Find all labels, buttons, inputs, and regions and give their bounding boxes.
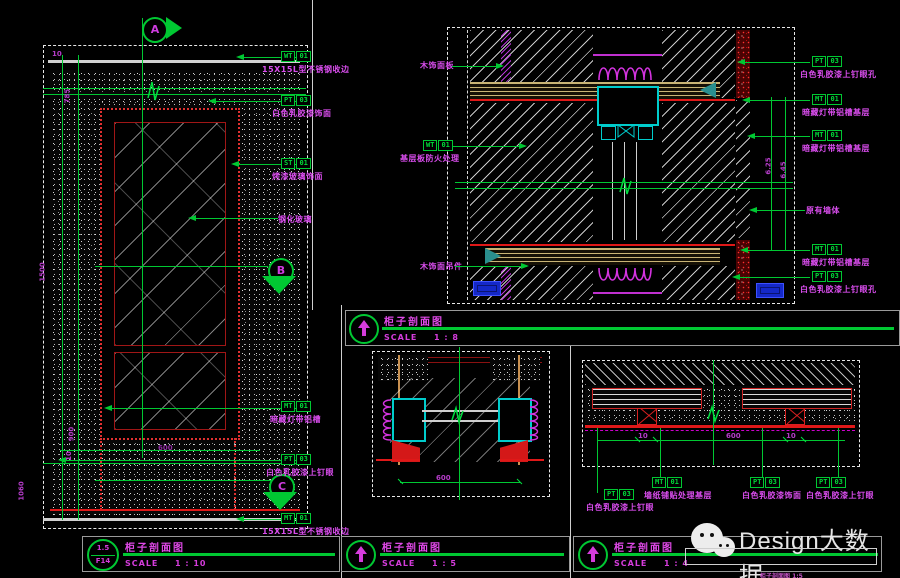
material-tag-1: WT01: [281, 51, 311, 62]
drawing-title: 柜子剖面图: [384, 313, 444, 328]
title-underline: [380, 553, 564, 556]
tag-num: 01: [296, 513, 310, 524]
ceiling-line: [48, 60, 300, 63]
corridor-line-1: [455, 182, 793, 183]
shelf-wedge-bottom-icon: [485, 248, 501, 264]
plan-arrow-r4: [740, 247, 748, 253]
br-label-1: 白色乳胶漆上钉眼: [586, 502, 654, 513]
tag-num: 01: [827, 130, 841, 141]
scale-value: 1 : 5: [432, 559, 457, 568]
material-label-2: 白色乳胶漆饰面: [272, 108, 332, 119]
tag-num: 03: [619, 489, 633, 500]
material-tag-6: MT01: [281, 513, 311, 524]
ref-divider: [91, 555, 115, 556]
leader-to-marker-b: [95, 266, 268, 267]
tag-code: PT: [812, 56, 826, 67]
index-box-glyph: [760, 287, 780, 294]
tag-num: 03: [827, 56, 841, 67]
plan-tag-2: MT01: [812, 94, 842, 105]
titlebar-middle-icon: [346, 540, 376, 570]
tag-num: 01: [438, 140, 452, 151]
up-arrow-stem: [362, 327, 366, 336]
br-dim-600: 600: [726, 432, 741, 440]
cad-drawing-canvas: A B C WT01 15X15L型不锈钢收边 PT03 白色乳胶漆饰面 ST0…: [0, 0, 900, 578]
plan-tag-3: MT01: [812, 130, 842, 141]
wechat-eye: [719, 544, 722, 547]
footnote-text: 柜子剖面图 1:5: [760, 571, 803, 578]
plan-label-2: 暗藏灯带铝槽基层: [802, 107, 870, 118]
wechat-eye: [710, 533, 714, 537]
up-arrow-stem: [359, 553, 363, 562]
tag-code: PT: [816, 477, 830, 488]
dim-10-top: 10: [52, 50, 62, 58]
br-label-3: 白色乳胶漆饰面: [742, 490, 802, 501]
material-label-3: 烤漆玻璃饰面: [272, 171, 323, 182]
tag-code: WT: [423, 140, 437, 151]
break-symbol-icon: [618, 176, 632, 196]
br-label-2: 墙纸铺贴处理基层: [644, 490, 712, 501]
scale-value: 1 : 8: [434, 333, 459, 342]
dim-1060: 1060: [18, 481, 26, 500]
left-red-jamb-r: [234, 438, 239, 510]
title-underline: [123, 553, 335, 556]
tag-num: 01: [296, 158, 310, 169]
coil-cap-top: [593, 54, 662, 56]
br-panel-left: [592, 388, 702, 409]
viewport-divider-vertical-bottom: [570, 345, 571, 578]
wall-hatch-bottom-right: [662, 266, 735, 300]
mid-red-line-left: [376, 459, 420, 461]
section-marker-a: A: [142, 17, 168, 43]
br-tag-4: PT03: [816, 477, 846, 488]
leader-arrow-5: [104, 405, 112, 411]
tag-code: PT: [812, 271, 826, 282]
titlebar-plan-icon: [349, 314, 379, 344]
plan-wall-note: 原有墙体: [806, 205, 840, 216]
leader-6: [65, 460, 303, 461]
plan-note-1: 木饰面板: [420, 60, 454, 71]
leader-5: [110, 408, 303, 409]
level-line-2: [43, 94, 306, 95]
br-dim-10-right: 10: [786, 432, 796, 440]
tag-num: 01: [827, 94, 841, 105]
tag-num: 03: [296, 95, 310, 106]
tag-num: 01: [667, 477, 681, 488]
dim-10: 10: [65, 451, 73, 461]
leader-arrow-glass: [188, 215, 196, 221]
plan-label-4: 暗藏灯带铝槽基层: [802, 257, 870, 268]
spring-coil-bottom-icon: [597, 266, 653, 290]
br-red-face-line: [585, 425, 855, 428]
marker-b-triangle-icon: [262, 276, 296, 294]
plan-label-3: 暗藏灯带铝槽基层: [802, 143, 870, 154]
scale-value: 1 : 10: [175, 559, 206, 568]
leader-glass: [195, 218, 278, 219]
spring-coil-top-icon: [597, 58, 653, 82]
tag-code: MT: [812, 94, 826, 105]
marker-c-triangle-icon: [263, 492, 297, 510]
plan-wall-edge-dashed: [467, 30, 469, 300]
tag-num: 03: [827, 271, 841, 282]
dim-785: 785: [63, 89, 71, 104]
tag-code: MT: [812, 130, 826, 141]
tag-code: WT: [281, 51, 295, 62]
tag-num: 03: [296, 454, 310, 465]
material-tag-4: MT01: [281, 401, 311, 412]
plan-leader-1: [452, 66, 502, 67]
plan-arrow-r1: [737, 59, 745, 65]
mid-frame-right: [498, 398, 532, 442]
tag-code: PT: [281, 454, 295, 465]
bowtie-icon: [617, 124, 635, 138]
plan-leader-r2: [748, 100, 810, 101]
watermark: Design大数据: [683, 515, 893, 570]
plan-arrow-r3: [747, 133, 755, 139]
scale-prefix: SCALE: [125, 559, 158, 568]
br-leader-4: [838, 428, 839, 478]
mid-coil-right-icon: [528, 398, 542, 440]
mid-dim-line: [400, 482, 520, 483]
titlebar-middle: 柜子剖面图 SCALE 1 : 5: [341, 536, 570, 572]
shelf-band-top: [470, 82, 720, 99]
scale-prefix: SCALE: [384, 333, 417, 342]
glass-panel-lower: [114, 352, 226, 430]
br-leader-3: [762, 428, 763, 478]
door-hinge-left: [601, 126, 616, 140]
up-arrow-stem: [591, 553, 595, 562]
mid-frame-left: [392, 398, 426, 442]
break-symbol-icon: [706, 405, 720, 423]
scale-prefix: SCALE: [382, 559, 415, 568]
drawing-title: 柜子剖面图: [125, 539, 185, 554]
break-symbol-icon: [450, 406, 464, 424]
finish-strip-bottom: [501, 266, 511, 300]
plan-arrow-3: [521, 263, 529, 269]
index-box-right: [756, 283, 784, 298]
plan-label-5: 白色乳胶漆上钉眼孔: [800, 284, 877, 295]
marker-a-triangle-icon: [166, 17, 182, 39]
br-blocking-left: [637, 408, 657, 425]
leader-arrow-1: [236, 54, 244, 60]
material-label-5: 白色乳胶漆上钉眼: [266, 467, 334, 478]
tag-num: 03: [831, 477, 845, 488]
plan-leader-r5: [738, 277, 810, 278]
glass-panel-upper: [114, 122, 226, 346]
tag-code: MT: [281, 513, 295, 524]
tag-code: MT: [652, 477, 666, 488]
material-tag-5: PT03: [281, 454, 311, 465]
tag-num: 03: [765, 477, 779, 488]
titlebar-left-ref-bubble: 1.5 F14: [87, 539, 119, 571]
plan-tag-5: PT03: [812, 271, 842, 282]
viewport-divider-vertical-top: [312, 0, 313, 310]
door-leaf-line-1: [612, 142, 613, 240]
br-leader-2: [660, 428, 661, 478]
right-hatch-strip: [736, 100, 750, 238]
titlebar-plan: 柜子剖面图 SCALE 1 : 8: [345, 310, 900, 346]
level-line-3: [43, 463, 306, 464]
wechat-eye: [700, 533, 704, 537]
ref-number: 1.5: [89, 544, 117, 552]
scale-prefix: SCALE: [614, 559, 647, 568]
plan-dim-625: 6.25: [765, 157, 773, 174]
plan-arrow-r5: [732, 274, 740, 280]
plan-leader-2: [453, 146, 525, 147]
br-tag-2: MT01: [652, 477, 682, 488]
glass-note: 钢化玻璃: [278, 214, 312, 225]
dim-600-left: 600: [158, 444, 173, 452]
leader-arrow-2: [208, 98, 216, 104]
red-line-bottom: [470, 244, 735, 246]
material-tag-3: ST01: [281, 158, 311, 169]
titlebar-right-icon: [578, 540, 608, 570]
wall-hatch-mid-left: [470, 103, 593, 242]
tag-code: ST: [281, 158, 295, 169]
ref-sheet: F14: [89, 557, 117, 565]
plan-arrow-wall: [749, 207, 757, 213]
index-box-left: [473, 281, 501, 296]
dim-1500: 1500: [39, 262, 47, 281]
tag-code: PT: [281, 95, 295, 106]
br-magenta-dashed: [585, 430, 855, 432]
left-red-jamb-l: [100, 438, 105, 510]
wechat-eye: [726, 544, 729, 547]
plan-tag-1: PT03: [812, 56, 842, 67]
plan-leader-r3: [753, 136, 810, 137]
door-head-box: [597, 86, 659, 126]
plan-arrow-2: [519, 143, 527, 149]
tag-num: 01: [296, 51, 310, 62]
br-tag-1: PT03: [604, 489, 634, 500]
plan-arrow-r2: [742, 97, 750, 103]
titlebar-left: 1.5 F14 柜子剖面图 SCALE 1 : 10: [82, 536, 340, 572]
drawing-title: 柜子剖面图: [614, 539, 674, 554]
tag-code: PT: [604, 489, 618, 500]
plan-left-tag-label: 基层板防火处理: [400, 153, 460, 164]
drawing-title: 柜子剖面图: [382, 539, 442, 554]
plan-leader-r4: [746, 250, 810, 251]
tag-num: 01: [296, 401, 310, 412]
material-label-4: 暗藏灯带铝槽: [270, 414, 321, 425]
plan-leader-wall: [755, 210, 805, 211]
marker-a-letter: A: [151, 23, 160, 36]
level-line-1: [43, 88, 306, 89]
plan-tag-4: MT01: [812, 244, 842, 255]
tag-code: MT: [812, 244, 826, 255]
plan-dim-645: 6.45: [780, 161, 788, 178]
br-tag-3: PT03: [750, 477, 780, 488]
plan-left-tag: WT01: [423, 140, 453, 151]
mid-dim-600: 600: [436, 474, 451, 482]
tag-num: 01: [827, 244, 841, 255]
material-tag-2: PT03: [281, 95, 311, 106]
leader-to-marker-c: [95, 480, 285, 481]
mid-centerline: [459, 347, 460, 500]
break-symbol-icon: [146, 80, 160, 102]
br-leader-1: [597, 428, 598, 493]
dim-900: 900: [67, 427, 75, 442]
br-dim-10-left: 10: [638, 432, 648, 440]
br-wall-hatch: [585, 363, 855, 385]
title-underline: [382, 327, 894, 330]
tag-code: MT: [281, 401, 295, 412]
index-box-glyph: [477, 285, 497, 292]
tag-code: PT: [750, 477, 764, 488]
watermark-frame: [685, 548, 877, 565]
br-dim-line: [597, 440, 845, 441]
mid-red-line-right: [500, 459, 544, 461]
mid-coil-left-icon: [379, 398, 393, 440]
br-panel-right: [742, 388, 852, 409]
door-hinge-right: [638, 126, 653, 140]
plan-leader-3: [455, 266, 527, 267]
material-label-1: 15X15L型不锈钢收边: [262, 64, 350, 75]
section-cut-line: [142, 18, 143, 458]
plan-label-1: 白色乳胶漆上钉眼孔: [800, 69, 877, 80]
br-blocking-right: [785, 408, 805, 425]
plan-leader-r1: [742, 62, 810, 63]
coil-cap-bottom: [593, 292, 662, 294]
wall-hatch-mid-right: [662, 103, 735, 242]
corridor-line-2: [455, 188, 793, 189]
leader-arrow-7: [236, 516, 244, 522]
br-label-4: 白色乳胶漆上钉眼: [806, 490, 874, 501]
shelf-wedge-top-icon: [700, 82, 716, 98]
door-leaf-line-3: [636, 142, 637, 240]
leader-arrow-3: [231, 161, 239, 167]
plan-arrow-1: [496, 63, 504, 69]
